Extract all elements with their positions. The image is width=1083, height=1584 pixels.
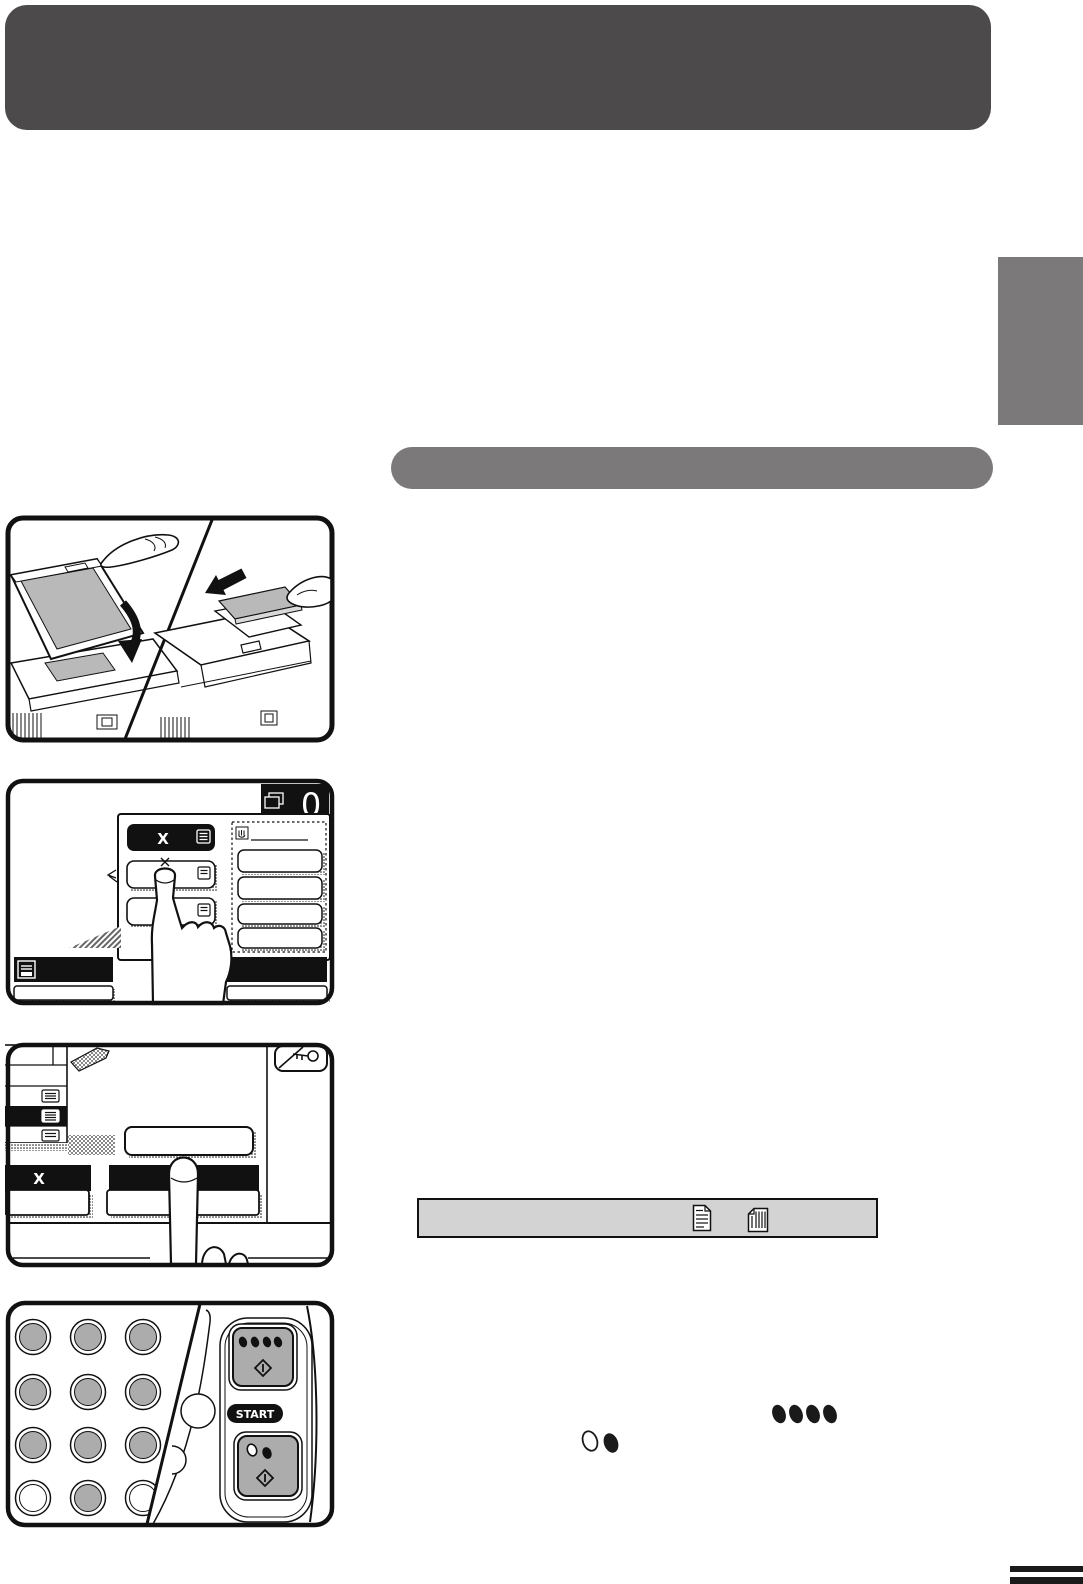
- step3-illustration-panel: X: [5, 1042, 335, 1268]
- touch-panel-illustration-1: 0 X: [5, 778, 335, 1006]
- pressed-function-key: [125, 1127, 257, 1159]
- original-portrait-icon: [692, 1204, 712, 1232]
- menu-list-icon: [42, 1130, 59, 1141]
- interrupt-key: [275, 1046, 327, 1071]
- chapter-side-tab: [998, 257, 1083, 425]
- start-key-label: START: [227, 1404, 283, 1423]
- manual-page: 0 X: [0, 0, 1083, 1584]
- menu-list-icon: [198, 867, 210, 879]
- original-loading-illustration: [5, 515, 335, 743]
- note-bar: [417, 1198, 878, 1238]
- zoom-display-key: X: [127, 824, 215, 851]
- shadow-strip: [68, 1135, 115, 1155]
- bottom-key-row: X: [5, 1165, 263, 1219]
- touch-panel-illustration-2: X: [5, 1042, 335, 1268]
- section-banner: [391, 447, 993, 489]
- original-rotated-icon: [747, 1207, 769, 1233]
- footer-rule-bottom: [1010, 1577, 1083, 1584]
- step2-illustration-panel: 0 X: [5, 778, 335, 1006]
- step4-illustration-panel: START: [5, 1300, 335, 1528]
- svg-text:START: START: [236, 1408, 275, 1421]
- bw-start-key: [234, 1432, 302, 1500]
- footer-rule-top: [1010, 1566, 1083, 1572]
- color-start-dots-icon: [770, 1401, 840, 1428]
- clear-key: [181, 1394, 215, 1428]
- menu-list-icon: [42, 1090, 59, 1102]
- menu-list-icon: [198, 904, 210, 916]
- color-start-key: [229, 1324, 297, 1390]
- menu-list-icon-selected: [42, 1110, 59, 1122]
- function-key-list: [238, 850, 325, 951]
- keypad-illustration: START: [5, 1300, 335, 1528]
- zoom-display-key: [5, 1165, 91, 1191]
- top-title-banner: [5, 5, 991, 130]
- bw-start-dots-icon: [578, 1428, 624, 1456]
- svg-text:X: X: [157, 830, 169, 848]
- menu-column: [5, 1045, 69, 1151]
- svg-text:X: X: [33, 1170, 45, 1188]
- step1-illustration-panel: [5, 515, 335, 743]
